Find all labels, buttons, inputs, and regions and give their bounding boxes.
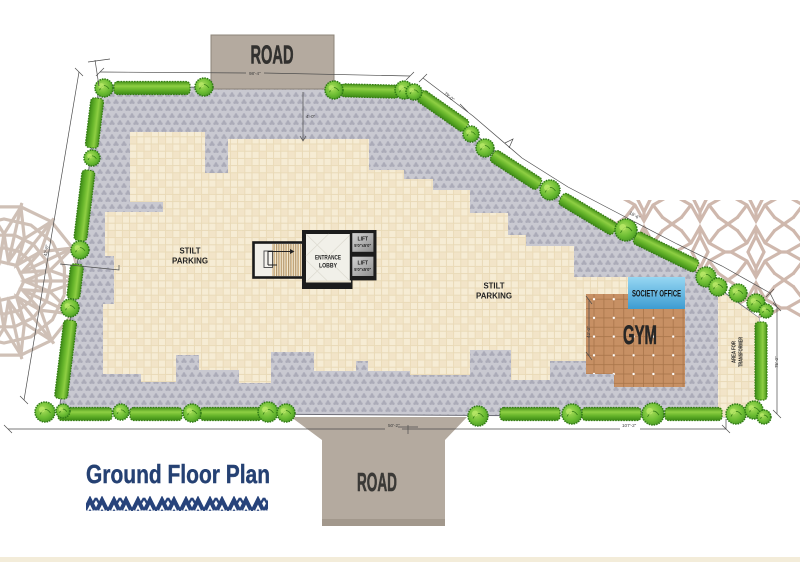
svg-text:ENTRANCE: ENTRANCE <box>315 256 341 262</box>
svg-text:PARKING: PARKING <box>172 256 208 266</box>
svg-text:SOCIETY OFFICE: SOCIETY OFFICE <box>632 289 681 299</box>
svg-text:AREA FOR: AREA FOR <box>732 341 738 363</box>
svg-text:STILT: STILT <box>484 281 506 291</box>
svg-text:4'-0": 4'-0" <box>306 114 316 119</box>
svg-text:ROAD: ROAD <box>251 40 294 70</box>
svg-text:75'-0": 75'-0" <box>774 356 779 368</box>
svg-text:LOBBY: LOBBY <box>319 264 337 270</box>
svg-text:107'-2": 107'-2" <box>622 423 637 428</box>
svg-text:50'-2": 50'-2" <box>388 423 400 428</box>
svg-text:5'0"x5'0": 5'0"x5'0" <box>354 243 371 248</box>
svg-text:GYM: GYM <box>623 320 657 350</box>
svg-text:STILT: STILT <box>180 246 202 256</box>
svg-text:LIFT: LIFT <box>358 237 369 243</box>
svg-text:PARKING: PARKING <box>476 291 512 301</box>
svg-text:5'0"x5'0": 5'0"x5'0" <box>354 267 371 272</box>
svg-text:LIFT: LIFT <box>358 261 369 267</box>
svg-text:Ground Floor Plan: Ground Floor Plan <box>86 459 270 489</box>
svg-text:42'-0": 42'-0" <box>586 326 591 338</box>
svg-text:ROAD: ROAD <box>357 467 397 497</box>
svg-text:TRANSFORMER: TRANSFORMER <box>739 337 745 367</box>
svg-text:98'-4": 98'-4" <box>249 71 261 76</box>
